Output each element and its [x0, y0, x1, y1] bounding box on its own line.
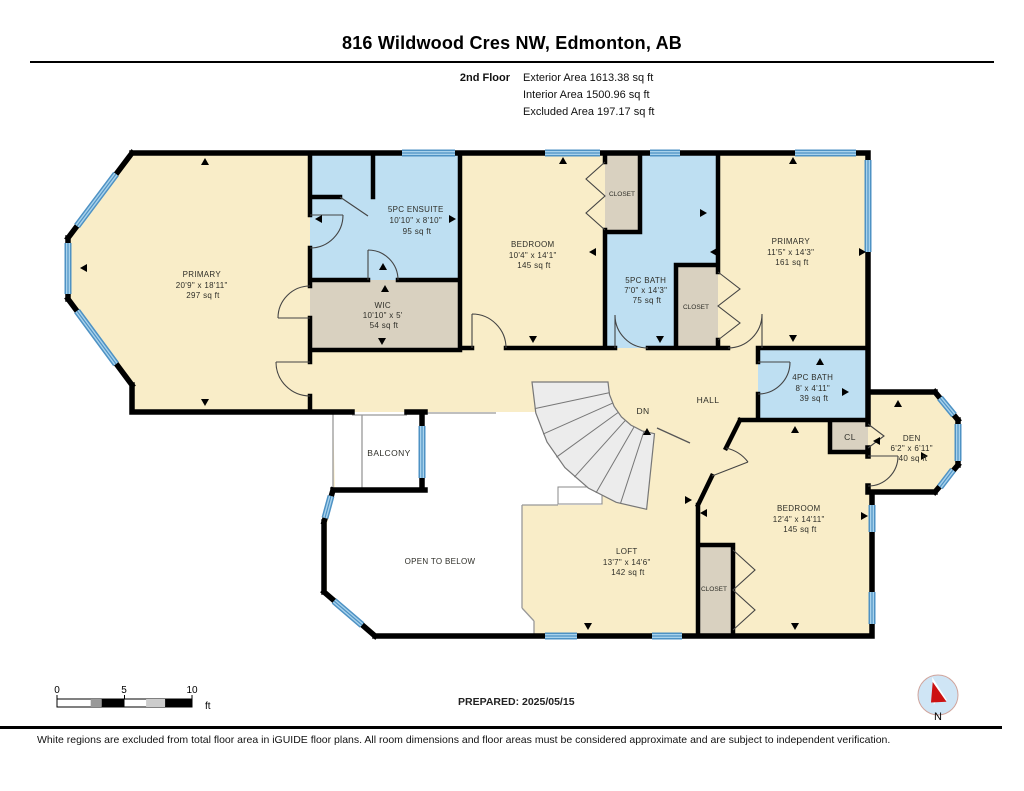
floorplan-page: 816 Wildwood Cres NW, Edmonton, AB 2nd F… [0, 0, 1024, 791]
footer-divider [0, 726, 1002, 729]
scale-unit: ft [205, 701, 211, 712]
floorplan-drawing: PRIMARY 20'9" x 18'11" 297 sq ft 5PC ENS… [0, 0, 1024, 791]
compass-north-label: N [934, 711, 942, 723]
label-cl: CL [844, 432, 856, 442]
label-closet-top: CLOSET [609, 191, 635, 198]
scale-tick-0: 0 [54, 685, 60, 696]
label-dn: DN [636, 406, 649, 416]
label-closet-bottom: CLOSET [701, 586, 727, 593]
compass: N [918, 675, 958, 723]
label-open-to-below: OPEN TO BELOW [405, 557, 476, 566]
prepared-date: PREPARED: 2025/05/15 [458, 696, 575, 708]
disclaimer-text: White regions are excluded from total fl… [37, 734, 997, 746]
scale-tick-5: 5 [121, 685, 127, 696]
label-closet-mid: CLOSET [683, 304, 709, 311]
label-hall: HALL [697, 395, 720, 405]
scale-tick-10: 10 [186, 685, 198, 696]
scale-bar: 0 5 10 ft [54, 685, 211, 712]
label-balcony: BALCONY [367, 448, 410, 458]
